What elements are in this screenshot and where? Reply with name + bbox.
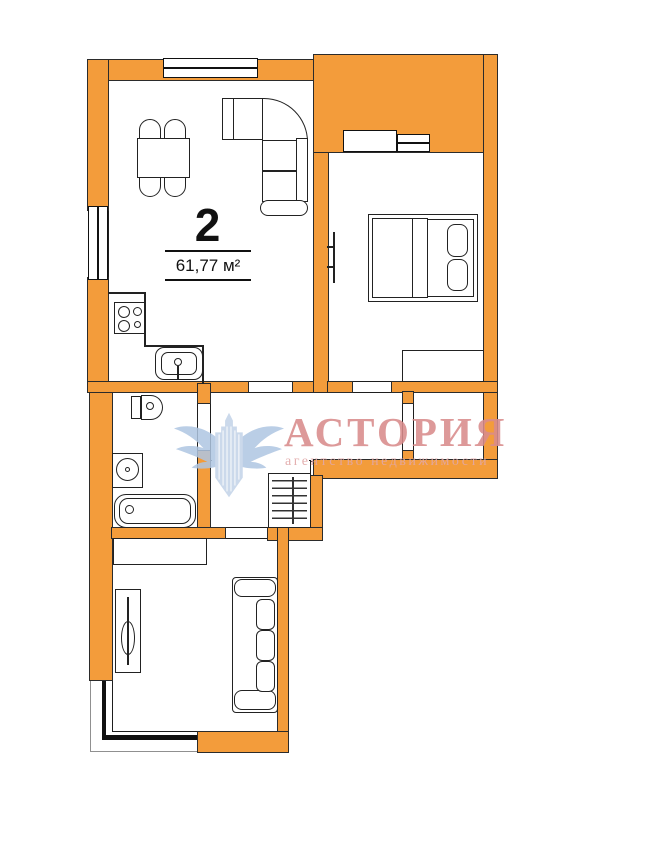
bay-wall-line-horizontal xyxy=(102,735,199,740)
sofa-cushion-3 xyxy=(256,661,275,692)
sofa-cushion-1 xyxy=(256,599,275,630)
agency-tagline-watermark: агентство недвижимости xyxy=(285,454,489,470)
stove-burner-4 xyxy=(134,321,141,328)
bed-pillow-2 xyxy=(447,259,468,291)
toilet-tank xyxy=(131,396,141,419)
bathtub-drain xyxy=(125,505,134,514)
kitchen-top-window xyxy=(163,58,258,78)
bedroom-radiator-line xyxy=(333,232,335,283)
stove-burner-2 xyxy=(133,307,142,316)
wall-living-south xyxy=(198,732,288,752)
dining-table xyxy=(137,138,190,178)
wall-kitchen-bottom-left xyxy=(88,382,248,392)
sofa-armrest-top xyxy=(234,579,276,597)
corner-sofa-bottom-armrest xyxy=(260,200,308,216)
kitchen-sink-tap-line xyxy=(177,366,179,379)
bed-pillow-1 xyxy=(447,224,468,257)
washing-machine-center xyxy=(125,467,130,472)
apartment-rooms-number: 2 xyxy=(160,202,256,248)
wall-bath-partition-upper xyxy=(198,384,210,403)
wall-closet-west-upper xyxy=(403,392,413,403)
stove-burner-3 xyxy=(118,320,130,332)
wall-left-upper xyxy=(88,60,108,210)
dressing-table-line xyxy=(127,597,129,665)
dining-chair-top-right xyxy=(164,119,186,139)
bed-blanket-fold xyxy=(412,218,428,298)
wall-bedroom-south-left xyxy=(328,382,352,392)
wall-left-lower xyxy=(88,278,108,388)
kitchen-left-window xyxy=(88,206,108,280)
corner-sofa-cushion-2 xyxy=(262,171,297,202)
wall-niche-east xyxy=(311,476,322,530)
bay-wall-line-vertical xyxy=(102,678,106,740)
wall-hall-south xyxy=(112,528,225,538)
wall-bedroom-south-right xyxy=(392,382,497,392)
bedroom-radiator-tick-1 xyxy=(327,246,333,248)
corner-sofa-cushion-1 xyxy=(262,140,297,171)
corner-sofa-backrest xyxy=(296,138,308,202)
balcony-window xyxy=(397,134,430,152)
bedroom-radiator-tick-2 xyxy=(327,266,333,268)
stove-burner-1 xyxy=(118,306,130,318)
agency-logo-eagle-icon xyxy=(170,406,288,506)
bed-blanket xyxy=(372,218,413,298)
dining-chair-top-left xyxy=(139,119,161,139)
toilet-drain xyxy=(146,402,154,410)
bedroom-wardrobe xyxy=(402,350,484,382)
floorplan-canvas: 2 61,77 м² xyxy=(0,0,670,864)
agency-name-watermark: АСТОРИЯ xyxy=(284,412,507,453)
apartment-area-value: 61,77 м² xyxy=(165,250,251,281)
kitchen-sink-tap xyxy=(174,358,182,366)
wall-living-east xyxy=(278,528,288,732)
corner-sofa-left-armrest xyxy=(222,98,234,140)
sofa-armrest-bottom xyxy=(234,690,276,710)
wall-niche-jog xyxy=(268,528,322,540)
apartment-label: 2 61,77 м² xyxy=(160,202,256,281)
sofa-cushion-2 xyxy=(256,630,275,661)
balcony-door xyxy=(343,130,397,152)
wall-left-middle xyxy=(90,384,112,680)
kitchen-counter-line-top xyxy=(108,292,146,294)
living-wardrobe xyxy=(113,538,207,565)
